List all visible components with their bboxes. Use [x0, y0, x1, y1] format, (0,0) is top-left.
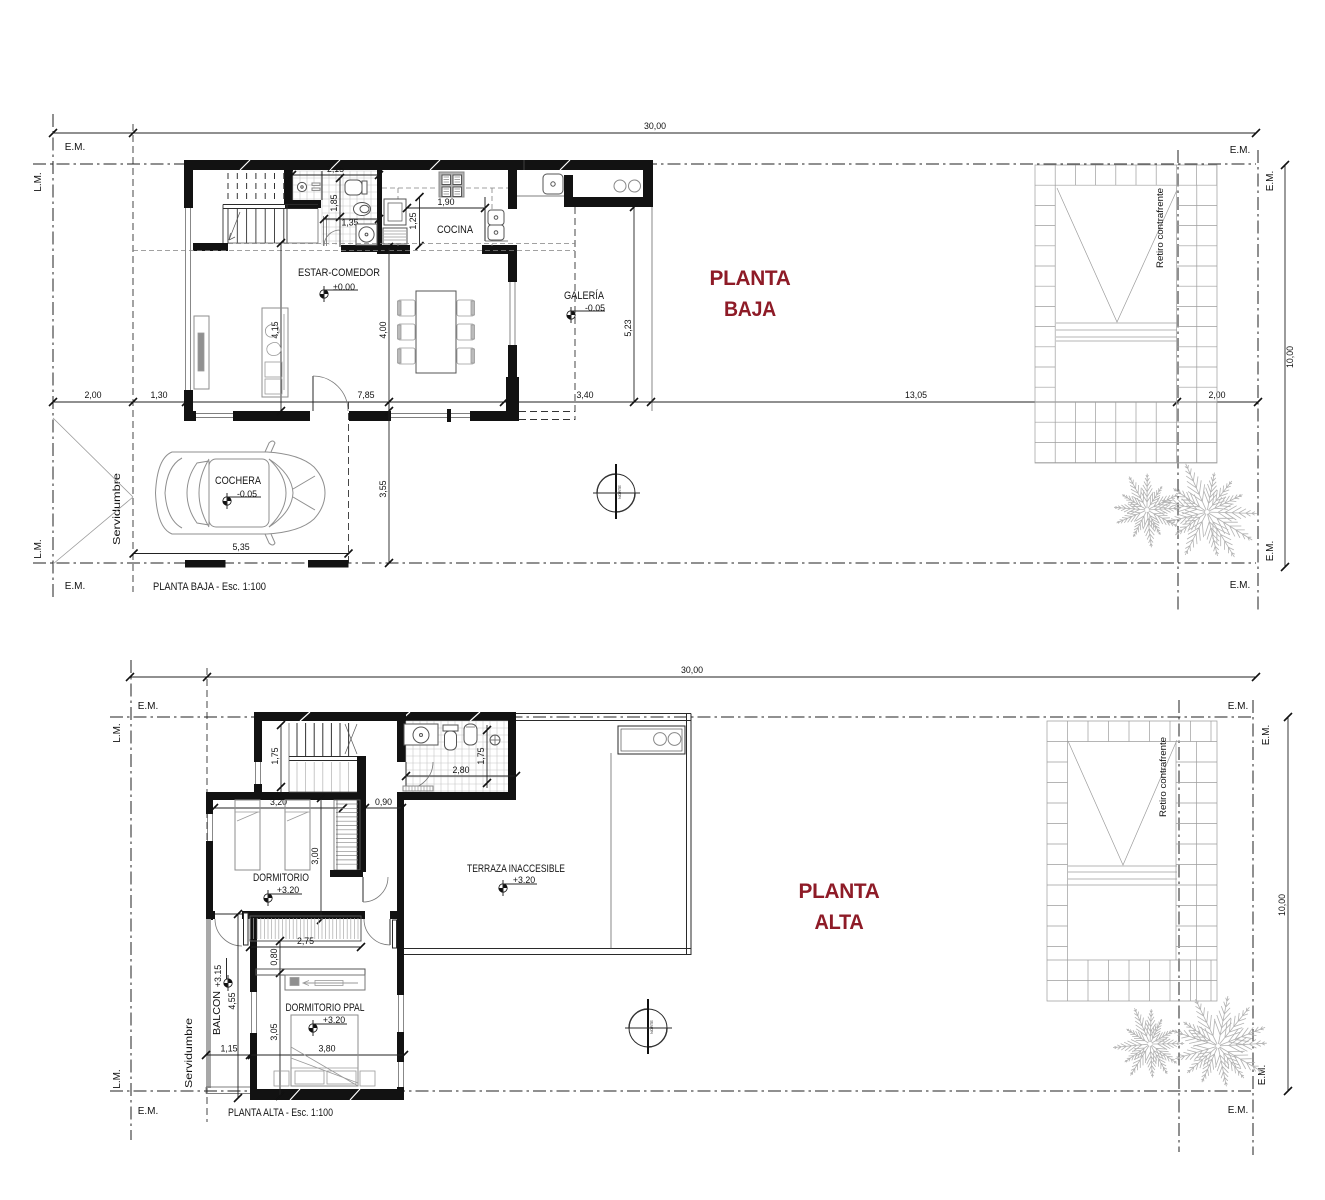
- svg-text:L.M.: L.M.: [33, 539, 44, 558]
- svg-text:E.M.: E.M.: [1230, 580, 1251, 591]
- svg-text:1,75: 1,75: [270, 747, 280, 764]
- svg-text:1,90: 1,90: [437, 197, 454, 207]
- svg-text:E.M.: E.M.: [65, 142, 86, 153]
- svg-text:PLANTA: PLANTA: [799, 879, 880, 903]
- svg-text:Retiro contrafrente: Retiro contrafrente: [1158, 737, 1168, 817]
- svg-text:Retiro contrafrente: Retiro contrafrente: [1155, 188, 1165, 268]
- svg-text:COCINA: COCINA: [437, 224, 474, 236]
- svg-text:30,00: 30,00: [644, 121, 666, 131]
- svg-text:DORMITORIO PPAL: DORMITORIO PPAL: [286, 1002, 365, 1014]
- svg-text:GALERÍA: GALERÍA: [564, 289, 605, 302]
- svg-text:L.M.: L.M.: [112, 1069, 123, 1088]
- svg-text:10,00: 10,00: [1277, 894, 1287, 916]
- svg-text:2,15: 2,15: [327, 164, 344, 174]
- svg-text:2,80: 2,80: [452, 765, 469, 775]
- svg-text:3,80: 3,80: [318, 1044, 335, 1054]
- svg-text:1,15: 1,15: [220, 1044, 237, 1054]
- svg-text:10,00: 10,00: [1285, 346, 1295, 368]
- svg-text:7,85: 7,85: [357, 390, 374, 400]
- svg-text:NORTE: NORTE: [649, 1020, 654, 1034]
- svg-text:±0.00: ±0.00: [333, 282, 355, 292]
- svg-text:0,90: 0,90: [375, 797, 392, 807]
- svg-text:-0.05: -0.05: [237, 489, 257, 499]
- svg-text:PLANTA ALTA - Esc. 1:100: PLANTA ALTA - Esc. 1:100: [228, 1107, 333, 1119]
- svg-text:1,85: 1,85: [329, 194, 339, 211]
- svg-text:E.M.: E.M.: [1230, 145, 1251, 156]
- svg-text:NORTE: NORTE: [617, 485, 622, 499]
- svg-text:COCHERA: COCHERA: [215, 475, 262, 487]
- svg-text:0,80: 0,80: [269, 948, 279, 965]
- svg-text:E.M.: E.M.: [1261, 725, 1272, 746]
- svg-text:4,00: 4,00: [378, 321, 388, 338]
- svg-text:E.M.: E.M.: [138, 1106, 159, 1117]
- svg-text:+3.20: +3.20: [277, 885, 299, 895]
- svg-text:BAJA: BAJA: [724, 297, 776, 321]
- svg-text:3,40: 3,40: [576, 390, 593, 400]
- svg-text:5,23: 5,23: [623, 319, 633, 336]
- svg-text:5,35: 5,35: [232, 542, 249, 552]
- svg-text:L.M.: L.M.: [33, 172, 44, 191]
- svg-text:2,75: 2,75: [297, 936, 314, 946]
- svg-text:E.M.: E.M.: [138, 701, 159, 712]
- svg-text:Servidumbre: Servidumbre: [184, 1017, 195, 1088]
- svg-text:BALCON: BALCON: [212, 991, 223, 1035]
- svg-text:PLANTA BAJA - Esc. 1:100: PLANTA BAJA - Esc. 1:100: [153, 581, 266, 593]
- svg-text:1,30: 1,30: [150, 390, 167, 400]
- svg-text:E.M.: E.M.: [1265, 541, 1276, 562]
- svg-text:3,00: 3,00: [310, 847, 320, 864]
- svg-text:3,55: 3,55: [378, 480, 388, 497]
- svg-text:+3.20: +3.20: [513, 875, 535, 885]
- svg-text:-0.05: -0.05: [585, 303, 605, 313]
- svg-text:E.M.: E.M.: [1265, 171, 1276, 192]
- svg-text:E.M.: E.M.: [1228, 701, 1249, 712]
- svg-text:13,05: 13,05: [905, 390, 927, 400]
- svg-text:E.M.: E.M.: [1257, 1065, 1268, 1086]
- svg-text:30,00: 30,00: [681, 665, 703, 675]
- svg-text:4,55: 4,55: [227, 992, 237, 1009]
- svg-text:Servidumbre: Servidumbre: [112, 472, 123, 545]
- svg-text:DORMITORIO: DORMITORIO: [253, 872, 309, 884]
- svg-text:L.M.: L.M.: [112, 723, 123, 742]
- svg-text:PLANTA: PLANTA: [710, 266, 791, 290]
- svg-text:3,05: 3,05: [269, 1023, 279, 1040]
- svg-text:+3.20: +3.20: [323, 1015, 345, 1025]
- svg-text:2,00: 2,00: [84, 390, 101, 400]
- svg-text:TERRAZA INACCESIBLE: TERRAZA INACCESIBLE: [467, 863, 565, 875]
- svg-text:ESTAR-COMEDOR: ESTAR-COMEDOR: [298, 267, 380, 279]
- svg-text:+3.15: +3.15: [213, 965, 223, 987]
- svg-text:E.M.: E.M.: [1228, 1105, 1249, 1116]
- svg-text:1,25: 1,25: [408, 212, 418, 229]
- svg-text:ALTA: ALTA: [815, 910, 864, 934]
- svg-text:E.M.: E.M.: [65, 581, 86, 592]
- svg-text:1,75: 1,75: [476, 747, 486, 764]
